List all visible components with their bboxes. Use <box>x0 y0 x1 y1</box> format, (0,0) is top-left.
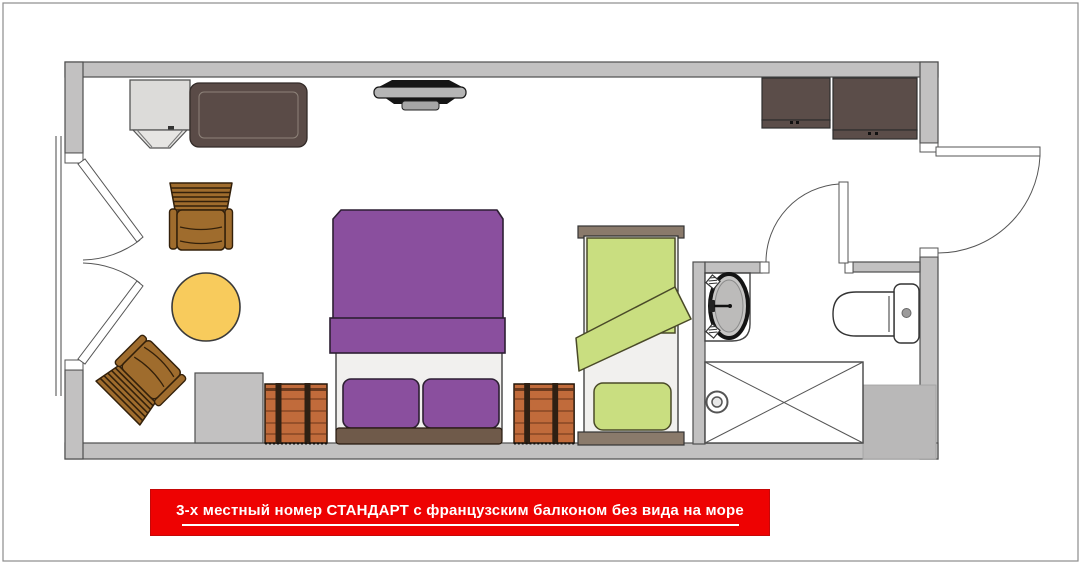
luggage-chest-right <box>514 383 574 444</box>
wardrobe-2-handle <box>875 132 878 135</box>
double-bed-pillow-right <box>423 379 499 428</box>
balcony-jamb-bottom <box>65 360 83 370</box>
cabinet-top <box>130 80 190 130</box>
wardrobe-2-handle <box>868 132 871 135</box>
armchair-2 <box>96 333 188 425</box>
bathroom-door <box>766 182 848 263</box>
shower-drain-inner <box>712 397 722 407</box>
balcony-door <box>78 159 143 364</box>
balcony-railing <box>56 136 61 396</box>
entrance-door-leaf <box>936 147 1040 156</box>
entrance-door-swing <box>938 156 1040 253</box>
service-shaft <box>863 385 936 459</box>
caption-banner-underline <box>182 524 739 526</box>
wardrobe-1-handle <box>796 121 799 124</box>
floor-plan <box>0 0 1080 569</box>
caption-banner-label: 3-х местный номер СТАНДАРТ с французским… <box>176 502 744 519</box>
tv-stand <box>402 101 439 110</box>
wall-top <box>65 62 938 77</box>
wall-right-upper <box>920 62 938 143</box>
bathroom-wall-left <box>693 262 705 444</box>
wardrobe-1-body <box>762 78 830 120</box>
wall-left-lower <box>65 370 83 459</box>
toilet <box>833 284 919 343</box>
minibar-cabinet <box>130 80 190 148</box>
console-table <box>190 83 307 147</box>
bathroom-jamb-left <box>760 262 769 273</box>
bathroom-door-swing <box>766 184 839 262</box>
bathroom-wall-top-left <box>705 262 762 273</box>
wardrobe-1-handle <box>790 121 793 124</box>
balcony-jamb-top <box>65 153 83 163</box>
bathroom-jamb-right <box>845 262 853 273</box>
double-bed-duvet <box>333 210 503 322</box>
single-bed-headboard <box>578 432 684 445</box>
bathroom-door-leaf <box>839 182 848 263</box>
entrance-jamb-top <box>920 143 938 152</box>
armchair-1 <box>170 183 233 250</box>
entrance-door <box>936 147 1040 253</box>
wall-column <box>195 373 263 443</box>
cabinet-stool <box>133 130 187 148</box>
double-bed <box>330 210 505 444</box>
entrance-jamb-bottom <box>920 248 938 257</box>
balcony-door-swing-bottom <box>83 263 140 283</box>
double-bed-duvet-fold <box>330 318 505 353</box>
toilet-flush-button <box>902 309 911 318</box>
single-bed-pillow <box>594 383 671 430</box>
caption-banner: 3-х местный номер СТАНДАРТ с французским… <box>150 489 770 536</box>
double-bed-pillow-left <box>343 379 419 428</box>
balcony-door-leaf-top <box>78 159 143 242</box>
double-bed-headboard <box>336 428 502 444</box>
wardrobes <box>762 78 917 139</box>
single-bed <box>576 226 691 445</box>
wall-left-upper <box>65 62 83 153</box>
balcony-door-swing-top <box>83 240 140 260</box>
floor-plan-page: 3-х местный номер СТАНДАРТ с французским… <box>0 0 1080 569</box>
tv-screen <box>374 87 466 98</box>
wardrobe-1 <box>762 78 830 128</box>
toilet-bowl <box>833 292 894 336</box>
faucet-tip <box>728 304 732 308</box>
wall-bottom <box>65 443 938 459</box>
wardrobe-2 <box>833 78 917 139</box>
console-top <box>190 83 307 147</box>
washbasin <box>705 273 750 341</box>
bathroom-wall-top-right <box>853 262 920 272</box>
tv <box>374 80 466 110</box>
shower <box>705 362 863 443</box>
coffee-table <box>172 273 240 341</box>
luggage-chest-left <box>265 383 327 444</box>
wardrobe-2-body <box>833 78 917 130</box>
